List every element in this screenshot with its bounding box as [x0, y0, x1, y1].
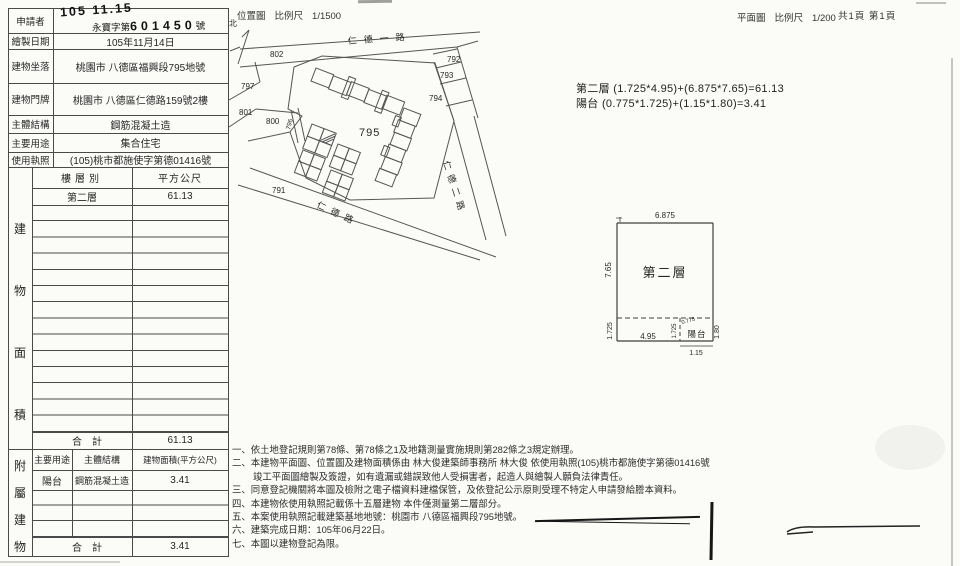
street-right-line-2	[474, 116, 506, 236]
row-value-building-address: 桃園市 八德區仁德路159號2樓	[53, 83, 228, 115]
annex-empty-rows	[32, 490, 228, 537]
note-4: 四、本建物依使用執照記載係十五層建物 本件僅測量第二層部分。	[232, 497, 710, 510]
dim-bottom-right: 1.15	[689, 350, 703, 357]
area-total-value: 61.13	[132, 432, 228, 449]
north-label: 北	[229, 19, 237, 28]
street-bottom-label: 仁德路	[315, 199, 360, 228]
stamp-suffix: 號	[196, 21, 206, 32]
plan-scale-value: 1/200	[812, 13, 836, 24]
dim-top: 6.875	[655, 211, 676, 220]
scanned-survey-document: 申請者 105 11.15 永寶字第601450號 繪製日期 105年11月14…	[0, 0, 960, 566]
parcel-label-792: 792	[447, 55, 461, 64]
annex-row-structure: 鋼筋混凝土造	[72, 470, 132, 490]
table-line	[8, 556, 229, 557]
area-row-floor: 第二層	[32, 188, 132, 205]
parcel-label-802: 802	[270, 50, 284, 59]
note-1: 一、依土地登記規則第78條、第78條之1及地籍測量實施規則第282條之3規定辦理…	[232, 443, 710, 456]
area-col-floor: 樓層別	[32, 167, 132, 188]
row-label-structure: 主體結構	[8, 115, 53, 133]
notes-block: 一、依土地登記規則第78條、第78條之1及地籍測量實施規則第282條之3規定辦理…	[232, 443, 710, 550]
parcel-label-793: 793	[440, 71, 454, 80]
row-label-building-address: 建物門牌	[8, 83, 53, 115]
building-cluster-a	[303, 124, 337, 158]
street-bottom-line-2	[238, 185, 480, 260]
plan-outline	[617, 223, 713, 341]
floor-plan: 6.875 7.65 第二層 1.725 4.95 1.725 0.775 陽台…	[570, 205, 800, 370]
row-value-use-permit: (105)桃市都施使字第德01416號	[53, 152, 228, 167]
left-parcel-lines	[229, 62, 305, 143]
pen-arrow-path	[787, 526, 920, 534]
plan-scale-label: 比例尺	[775, 13, 804, 24]
parcel-label-796: 796	[285, 118, 295, 131]
dim-bottom-left: 1.725	[607, 322, 614, 340]
row-label-building-site: 建物坐落	[8, 49, 53, 83]
scan-smudge-top	[358, 0, 392, 3]
annex-total-value: 3.41	[132, 537, 228, 556]
building-row-top	[309, 64, 406, 120]
note-2-continued: 竣工平面圖繪製及簽證，如有遺漏或錯誤致他人受損害者，起造人與繪製人願負法律責任。	[232, 470, 710, 483]
row-label-use-permit: 使用執照	[8, 152, 53, 167]
street-right-label: 仁德二路	[441, 159, 469, 216]
corner-tick	[616, 217, 622, 222]
row-value-draw-date: 105年11月14日	[53, 33, 228, 49]
note-3: 三、同意登記機關將本圖及檢附之電子檔資料建檔保管，及依登記公示原則受理不特定人申…	[232, 483, 710, 496]
scan-smudge-top-right	[916, 2, 946, 4]
balcony-label: 陽台	[687, 329, 706, 339]
street-right-line-1	[454, 122, 486, 240]
annex-section-side-label: 附屬建物	[12, 453, 28, 561]
page-count: 共1頁 第1頁	[838, 8, 896, 22]
parcel-label-800: 800	[266, 117, 280, 126]
floor-plan-header: 平面圖比例尺1/200	[737, 10, 845, 24]
row-value-main-use: 集合住宅	[53, 133, 228, 152]
area-col-sqm: 平方公尺	[132, 167, 228, 188]
area-empty-rows	[32, 205, 228, 432]
parcel-label-795: 795	[359, 127, 380, 139]
note-6: 六、建築完成日期：105年06月22日。	[232, 523, 710, 536]
applicant-label: 申請者	[8, 8, 53, 33]
map-lines	[229, 30, 506, 260]
scan-edge-line	[951, 58, 953, 566]
annex-col-area: 建物面積(平方公尺)	[132, 449, 228, 470]
parcel-label-791: 791	[272, 186, 286, 195]
annex-row-area: 3.41	[132, 470, 228, 490]
dim-balcony-h: 1.725	[672, 323, 678, 339]
building-cluster-b	[294, 150, 325, 181]
note-2: 二、本建物平面圖、位置圖及建物面積係由 林大俊建築師事務所 林大俊 依使用執照(…	[232, 456, 710, 469]
street-top-label: 仁德一路	[347, 31, 412, 46]
parcel-label-794: 794	[429, 94, 443, 103]
area-section-side-label: 建物面積	[12, 198, 28, 446]
pen-arrow-mark	[785, 522, 925, 538]
dim-bottom: 4.95	[640, 332, 656, 341]
annex-col-use: 主要用途	[32, 449, 72, 470]
building-row-right	[371, 106, 420, 187]
row-label-main-use: 主要用途	[8, 133, 53, 152]
pen-vertical-stroke	[709, 502, 713, 560]
area-total-label: 合計	[32, 432, 142, 449]
scan-edge-bottom	[0, 561, 120, 563]
row-label-draw-date: 繪製日期	[8, 33, 53, 49]
note-7: 七、本圖以建物登記為限。	[232, 537, 710, 550]
scan-blotch	[875, 425, 945, 470]
area-row-value: 61.13	[132, 188, 228, 205]
parcel-label-801: 801	[239, 108, 253, 117]
building-cluster-c	[329, 144, 360, 175]
parcel-label-797: 797	[241, 82, 255, 91]
row-value-structure: 鋼筋混凝土造	[53, 115, 228, 133]
room-label: 第二層	[642, 265, 687, 280]
plan-lines	[616, 217, 713, 346]
dim-left: 7.65	[604, 262, 613, 278]
annex-row-use: 陽台	[32, 470, 72, 490]
row-value-building-site: 桃園市 八德區福興段795地號	[53, 49, 228, 83]
north-arrow-icon	[230, 30, 249, 64]
plan-label: 平面圖	[737, 13, 766, 24]
annex-col-structure: 主體結構	[72, 449, 132, 470]
dim-right: 1.80	[714, 325, 721, 339]
annex-total-label: 合計	[32, 537, 142, 556]
stamp-digits: 601450	[130, 18, 196, 33]
